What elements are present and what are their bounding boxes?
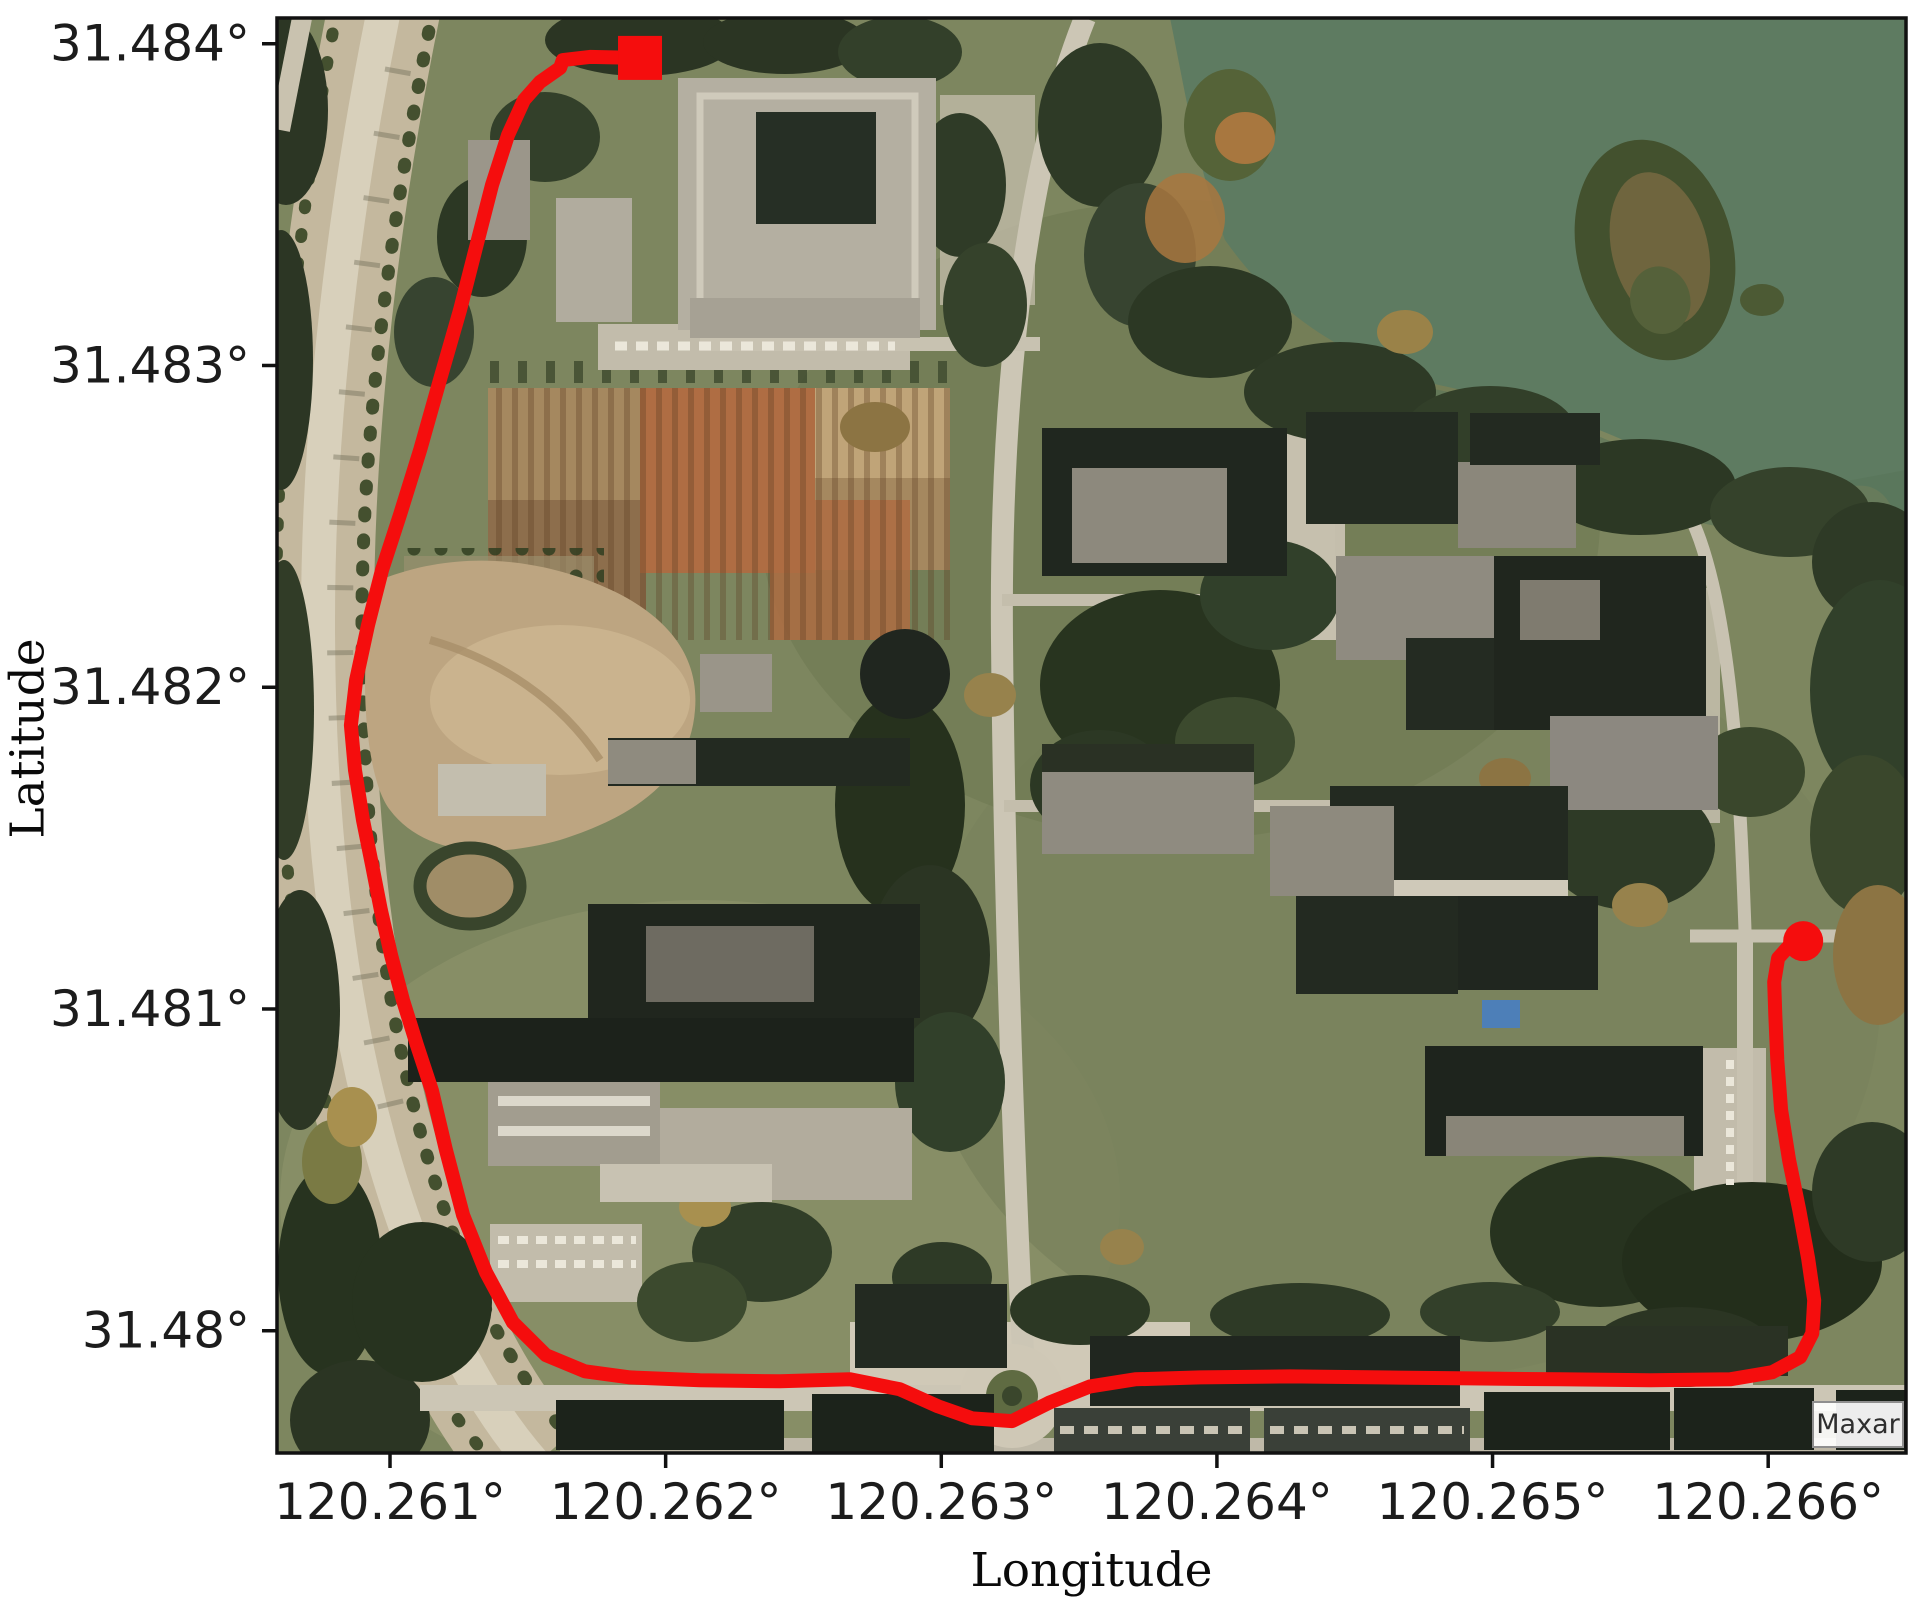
map-attribution-badge: Maxar <box>1812 1401 1904 1448</box>
y-axis-label: Latitude <box>1 569 56 909</box>
map-attribution-text: Maxar <box>1816 1409 1899 1440</box>
x-tick-label: 120.265° <box>1377 1473 1609 1531</box>
map-plot: 120.261°120.262°120.263°120.264°120.265°… <box>0 0 1918 1609</box>
start-marker <box>618 36 662 80</box>
y-tick-label: 31.48° <box>82 1302 250 1360</box>
y-tick-label: 31.481° <box>50 980 250 1038</box>
x-tick-label: 120.262° <box>550 1473 782 1531</box>
figure: 120.261°120.262°120.263°120.264°120.265°… <box>0 0 1918 1609</box>
x-tick-label: 120.263° <box>825 1473 1057 1531</box>
x-tick-label: 120.264° <box>1101 1473 1333 1531</box>
y-tick-label: 31.483° <box>50 336 250 394</box>
y-tick-label: 31.482° <box>50 658 250 716</box>
x-tick-label: 120.261° <box>274 1473 506 1531</box>
y-tick-label: 31.484° <box>50 15 250 73</box>
x-axis-label: Longitude <box>277 1543 1906 1598</box>
x-tick-label: 120.266° <box>1652 1473 1884 1531</box>
end-marker <box>1783 921 1823 961</box>
